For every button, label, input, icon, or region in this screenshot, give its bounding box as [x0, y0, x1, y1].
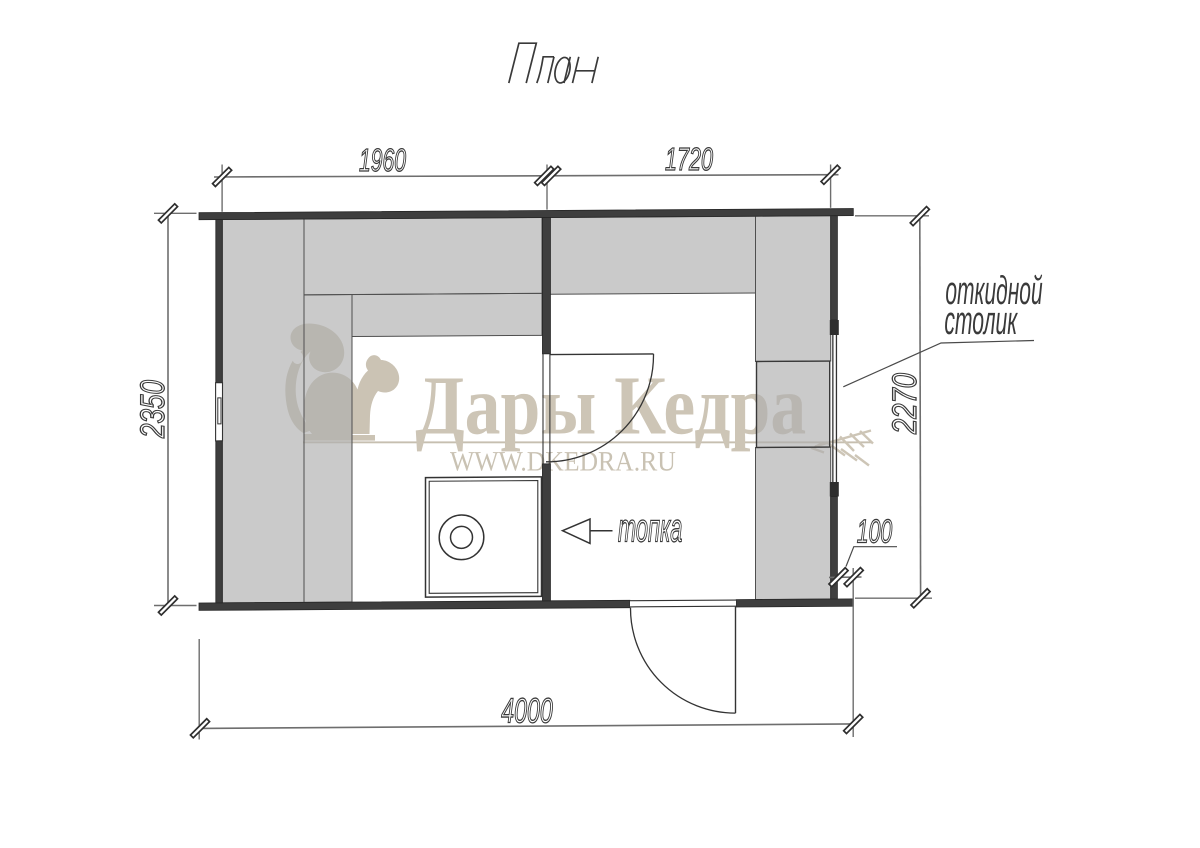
- svg-text:столик: столик: [944, 299, 1018, 343]
- svg-text:2270: 2270: [886, 373, 924, 435]
- svg-text:WWW.DKEDRA.RU: WWW.DKEDRA.RU: [450, 447, 676, 478]
- svg-text:Дары Кедра: Дары Кедра: [415, 360, 806, 453]
- svg-text:2350: 2350: [134, 380, 172, 439]
- svg-text:100: 100: [857, 512, 893, 549]
- svg-text:1720: 1720: [665, 141, 713, 177]
- svg-text:4000: 4000: [501, 692, 553, 731]
- svg-text:1960: 1960: [359, 142, 406, 178]
- svg-text:топка: топка: [618, 507, 682, 551]
